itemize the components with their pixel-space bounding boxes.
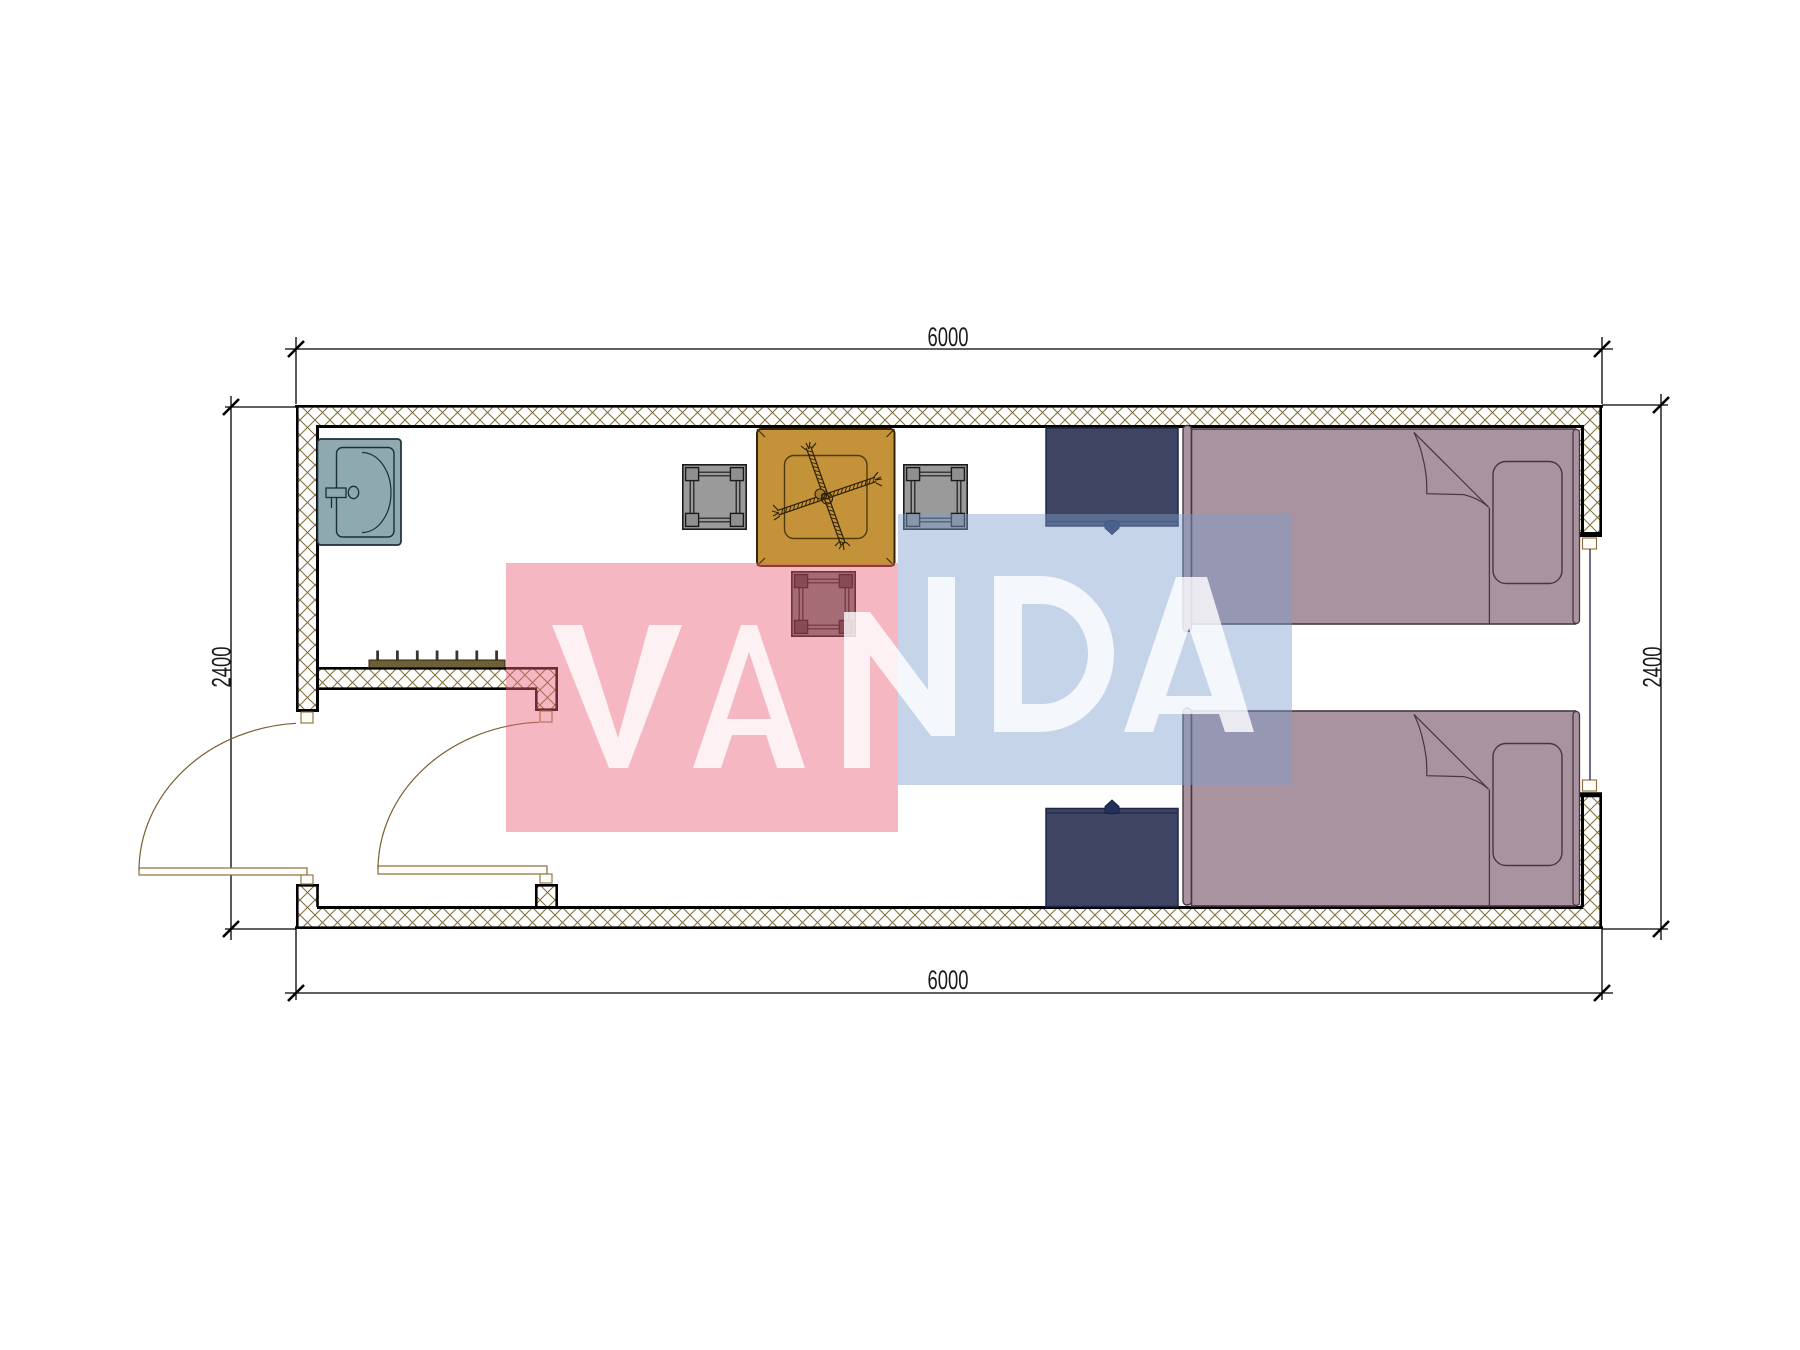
svg-text:2400: 2400 — [207, 647, 237, 688]
svg-text:2400: 2400 — [1637, 647, 1667, 688]
svg-text:6000: 6000 — [928, 965, 969, 995]
svg-text:6000: 6000 — [928, 322, 969, 352]
